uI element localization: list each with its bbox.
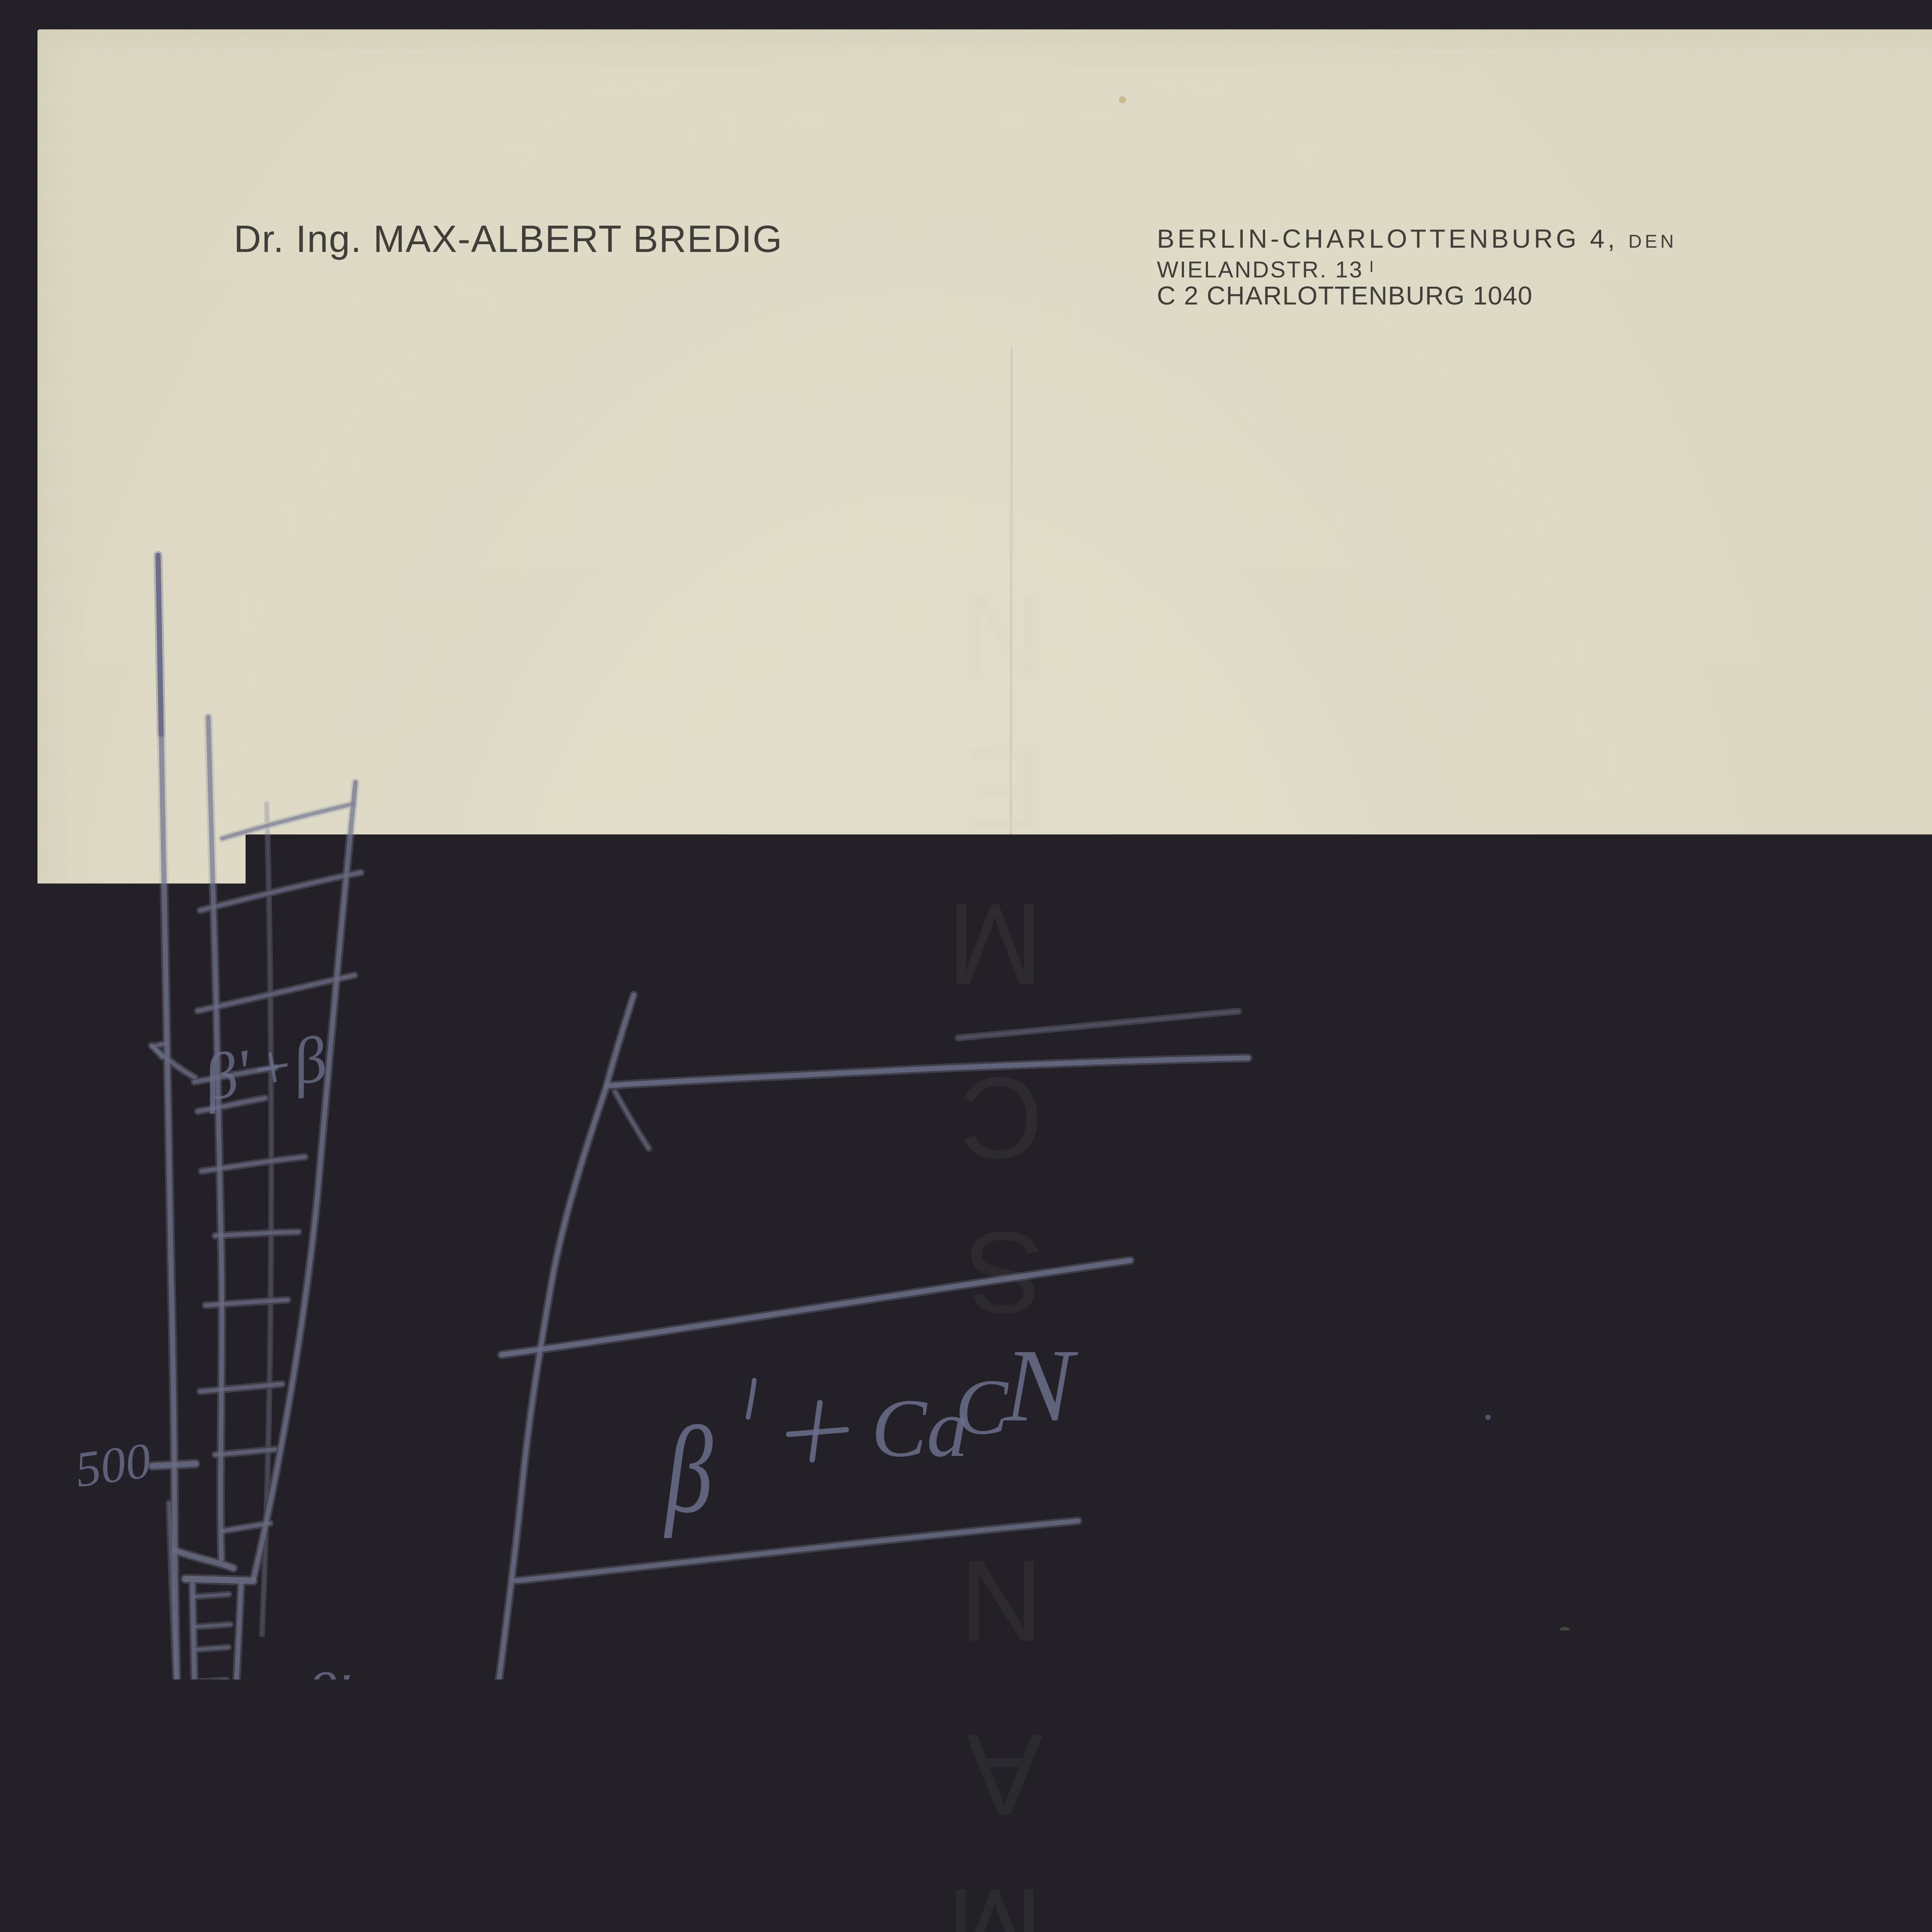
svg-text:M: M	[947, 1865, 1043, 1932]
svg-text:C: C	[955, 1363, 1009, 1451]
svg-text:500: 500	[72, 1432, 154, 1498]
svg-text:β: β	[662, 1401, 713, 1539]
svg-text:N: N	[959, 570, 1043, 700]
svg-text:E: E	[966, 725, 1043, 855]
svg-text:β': β'	[304, 1660, 350, 1729]
svg-text:Ca: Ca	[871, 1382, 968, 1474]
svg-text:C: C	[959, 1053, 1043, 1183]
svg-text:N: N	[1002, 1328, 1079, 1443]
svg-text:α: α	[144, 1827, 175, 1891]
svg-text:N: N	[959, 1536, 1043, 1666]
svg-text:M: M	[947, 879, 1043, 1009]
